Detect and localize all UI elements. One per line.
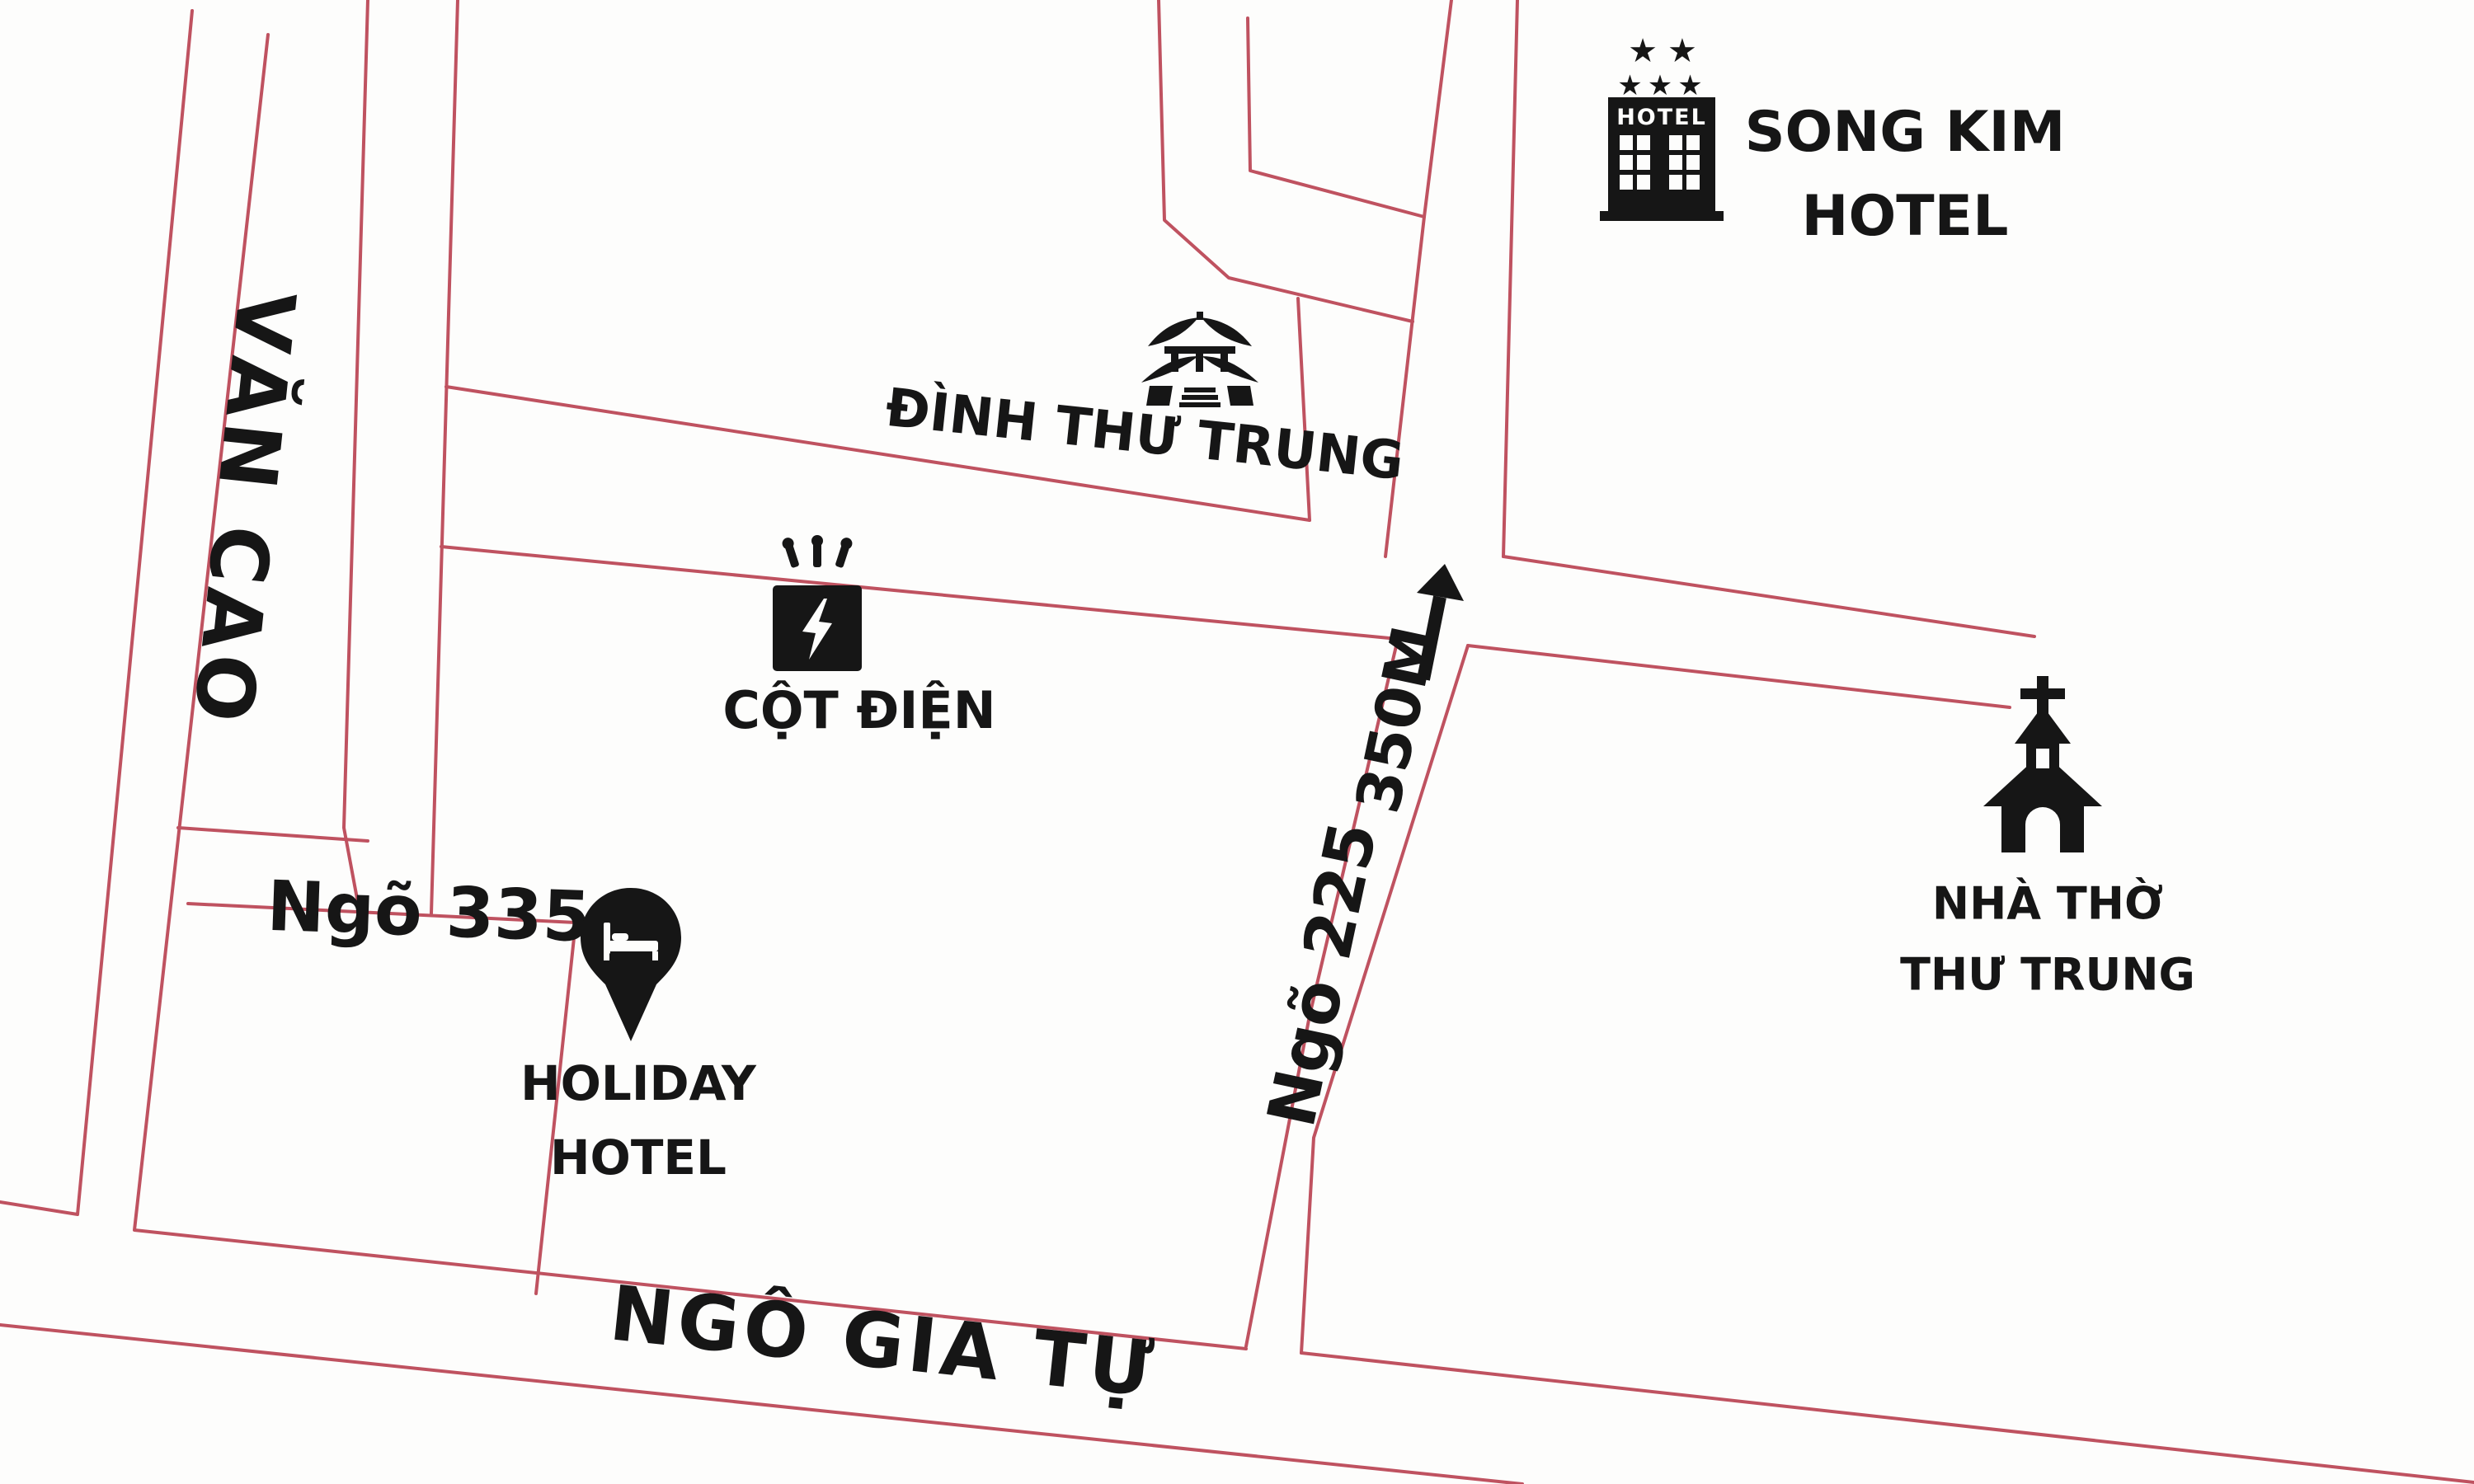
road-ngo-335-lower-block [188, 904, 576, 1294]
road-church-street-upper [1503, 556, 2034, 636]
hotel-stars-row1: ★★ [1628, 32, 1707, 70]
holiday-hotel-line1: HOLIDAY [520, 1047, 756, 1121]
church-icon [1978, 676, 2107, 852]
temple-icon [1140, 312, 1260, 411]
song-kim-line1: SONG KIM [1745, 91, 2066, 175]
road-temple-block-west [1159, 0, 1413, 322]
road-alley-right [431, 0, 458, 913]
street-label-ngo-335: Ngõ 335 [266, 865, 592, 959]
road-mid-block-line [1248, 18, 1424, 217]
holiday-hotel-line2: HOTEL [520, 1121, 756, 1195]
road-ngo-225-right-top [1503, 0, 1517, 556]
poi-label-cot-dien: CỘT ĐIỆN [722, 680, 995, 741]
road-temple-block-right [1298, 298, 1310, 520]
road-cot-dien-street-lower [441, 547, 1398, 639]
road-church-street-lower [1468, 646, 2010, 707]
road-ngo-gia-tu-upper-east [1301, 1353, 2474, 1482]
nha-tho-line2: THƯ TRUNG [1900, 940, 2195, 1011]
song-kim-line2: HOTEL [1745, 175, 2066, 259]
direction-arrow-icon [1402, 554, 1476, 686]
hotel-pin-icon [581, 888, 681, 1041]
hotel-building-icon: HOTEL [1600, 97, 1724, 221]
map-canvas: VĂN CAO Ngõ 335 Ngõ 225 350M NGÔ GIA TỰ … [0, 0, 2474, 1484]
road-alley-left [344, 0, 368, 912]
poi-label-song-kim-hotel: SONG KIM HOTEL [1745, 91, 2066, 259]
poi-label-holiday-hotel: HOLIDAY HOTEL [520, 1047, 756, 1195]
transformer-icon [771, 534, 863, 674]
nha-tho-line1: NHÀ THỜ [1900, 869, 2195, 940]
poi-label-nha-tho-thu-trung: NHÀ THỜ THƯ TRUNG [1900, 869, 2195, 1012]
road-ngo-335-upper [178, 828, 368, 841]
road-van-cao-left [0, 11, 192, 1214]
hotel-sign-text: HOTEL [1616, 105, 1707, 130]
